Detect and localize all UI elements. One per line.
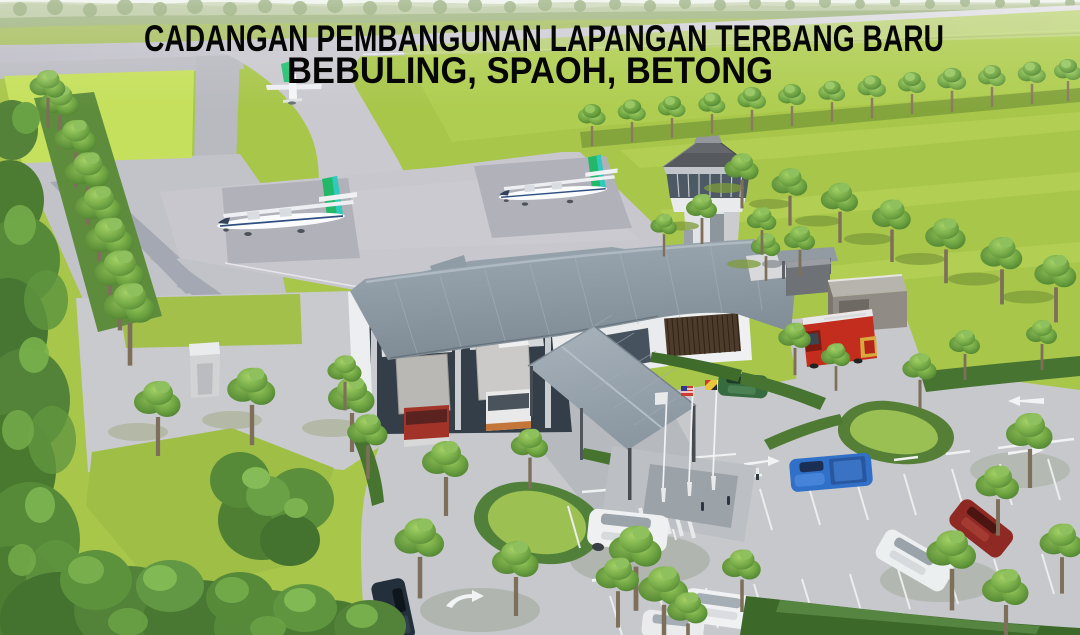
- svg-text:BEBULING, SPAOH, BETONG: BEBULING, SPAOH, BETONG: [287, 50, 773, 91]
